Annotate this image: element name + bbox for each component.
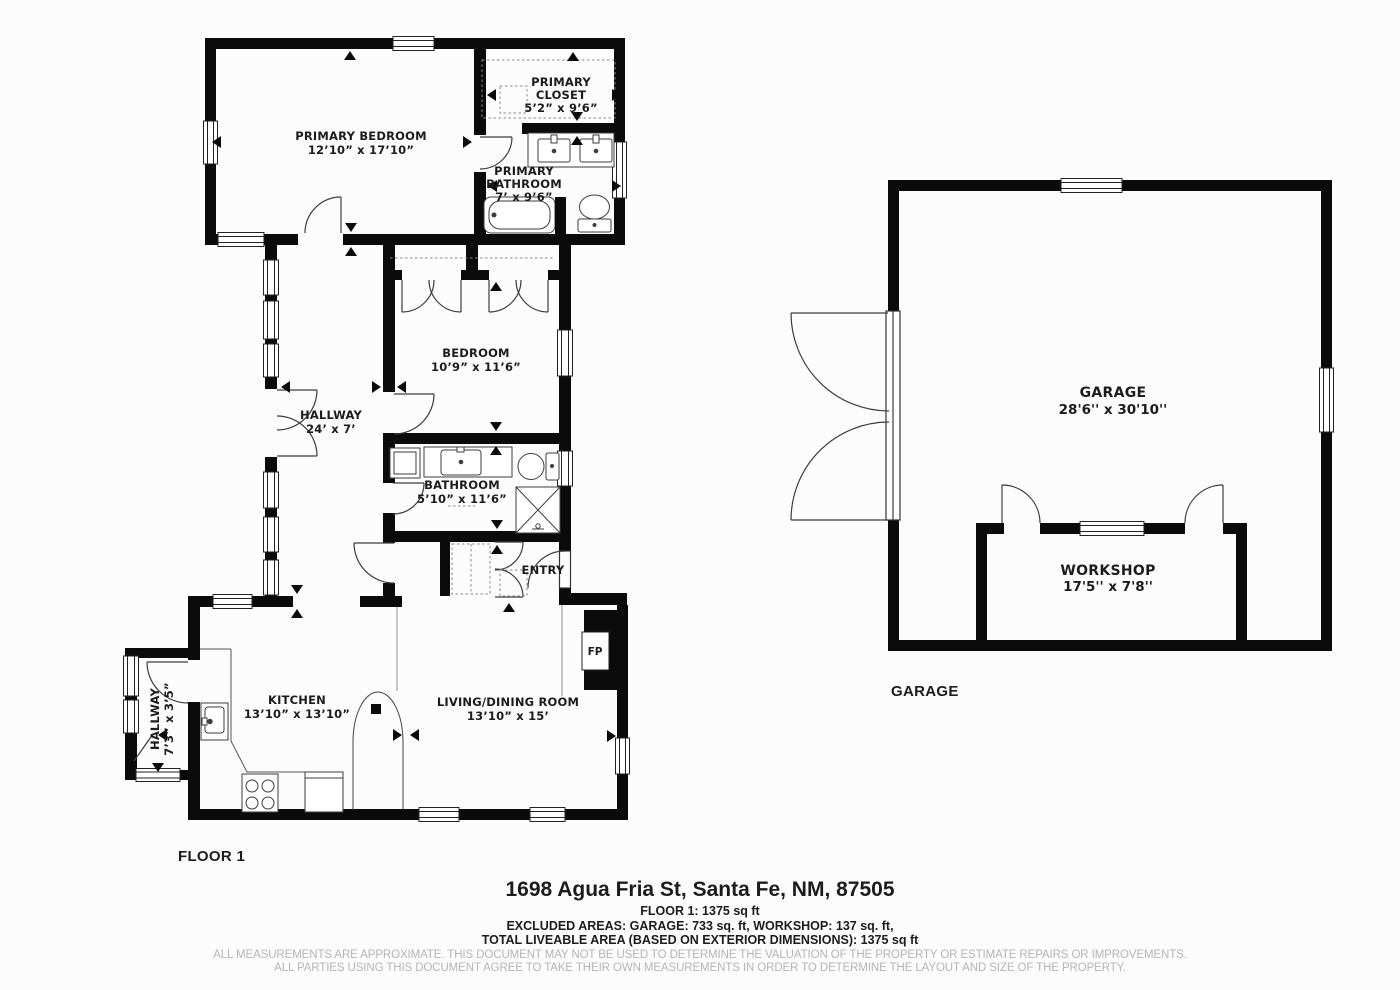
room-label-entry: ENTRY	[522, 563, 565, 577]
room-label-bedroom: BEDROOM	[442, 346, 509, 360]
room-label-living-dining: LIVING/DINING ROOM	[437, 695, 579, 709]
labels-layer: PRIMARY BEDROOM 12’10” x 17’10” PRIMARY …	[148, 75, 1167, 756]
arrow-down-icon	[490, 422, 502, 431]
arrow-left-icon	[487, 89, 496, 101]
arrow-left-icon	[281, 381, 290, 393]
kitchen-sink-icon	[201, 703, 228, 740]
arrow-up-icon	[503, 603, 515, 612]
arrow-up-icon	[291, 609, 303, 618]
arrow-up-icon	[345, 247, 357, 256]
closet-shelf-outline	[500, 86, 527, 113]
archway-icon	[353, 692, 403, 810]
doors-layer	[134, 137, 1223, 761]
titles-layer: FLOOR 1 GARAGE 1698 Agua Fria St, Santa …	[178, 683, 1187, 974]
window-icon	[1320, 368, 1334, 432]
window-icon	[1080, 522, 1144, 536]
garage-doors-icon	[791, 311, 900, 520]
floor-plan-page: PRIMARY BEDROOM 12’10” x 17’10” PRIMARY …	[0, 0, 1400, 990]
arrow-up-icon	[567, 52, 579, 61]
arrow-up-icon	[344, 51, 356, 60]
arrow-right-icon	[393, 729, 402, 741]
window-icon	[530, 808, 565, 822]
disclaimer-line-1: ALL MEASUREMENTS ARE APPROXIMATE. THIS D…	[213, 949, 1187, 961]
arrow-left-icon	[397, 381, 406, 393]
closet-doors-icon	[402, 280, 548, 312]
area-summary-line-1: FLOOR 1: 1375 sq ft	[640, 904, 760, 918]
room-label-primary-closet: PRIMARY	[531, 75, 591, 89]
room-dims-primary-bathroom: 7’ x 9’6”	[495, 190, 553, 204]
area-summary-line-3: TOTAL LIVEABLE AREA (BASED ON EXTERIOR D…	[482, 933, 919, 947]
room-label-primary-bedroom: PRIMARY BEDROOM	[295, 129, 426, 143]
room-label-garage: GARAGE	[1080, 385, 1147, 401]
window-icon	[393, 37, 434, 51]
window-icon	[558, 451, 573, 486]
arrow-down-icon	[345, 223, 357, 232]
door-swing-icon	[1002, 485, 1040, 523]
fireplace-label: FP	[588, 646, 603, 658]
arrow-up-icon	[490, 282, 502, 291]
room-label-kitchen: KITCHEN	[268, 693, 326, 707]
room-label-small-hallway: HALLWAY	[148, 688, 162, 750]
room-dims-primary-bedroom: 12’10” x 17’10”	[308, 143, 414, 157]
window-icon	[264, 301, 279, 339]
window-icon	[1061, 179, 1122, 193]
floor-plan-canvas: PRIMARY BEDROOM 12’10” x 17’10” PRIMARY …	[0, 0, 1400, 990]
area-summary-line-2: EXCLUDED AREAS: GARAGE: 733 sq. ft, WORK…	[506, 919, 893, 933]
window-icon	[264, 260, 279, 295]
room-dims-bathroom: 5’10” x 11’6”	[417, 492, 507, 506]
arrow-right-icon	[463, 136, 472, 148]
window-icon	[616, 738, 630, 774]
door-swing-icon	[1185, 485, 1223, 523]
window-icon	[124, 700, 139, 733]
arrow-up-icon	[491, 545, 503, 554]
arrow-right-icon	[372, 381, 381, 393]
window-icon	[264, 517, 279, 552]
address-line: 1698 Agua Fria St, Santa Fe, NM, 87505	[505, 878, 894, 901]
room-label-bathroom: BATHROOM	[424, 478, 500, 492]
room-dims-workshop: 17'5'' x 7'8''	[1063, 579, 1153, 595]
window-icon	[264, 344, 279, 377]
window-icon	[419, 808, 459, 822]
room-dims-primary-closet: 5’2” x 9’6”	[524, 101, 598, 115]
room-label-primary-closet: CLOSET	[536, 88, 586, 102]
room-dims-small-hallway: 7’3” x 3’5”	[162, 682, 176, 756]
window-icon	[264, 472, 279, 508]
door-swing-icon	[305, 197, 341, 233]
room-dims-kitchen: 13’10” x 13’10”	[244, 707, 350, 721]
window-icon	[213, 595, 252, 609]
room-label-small-hallway-group: HALLWAY 7’3” x 3’5”	[148, 682, 176, 756]
dishwasher-icon	[305, 772, 343, 812]
floor-title: FLOOR 1	[178, 848, 245, 865]
arrow-down-icon	[491, 520, 503, 529]
arrow-left-icon	[410, 729, 419, 741]
door-swing-icon	[394, 394, 434, 434]
window-icon	[264, 560, 279, 595]
garage-structure-title: GARAGE	[891, 683, 959, 700]
room-dims-living-dining: 13’10” x 15’	[467, 709, 549, 723]
arrow-down-icon	[291, 585, 303, 594]
double-sink-vanity-icon	[528, 133, 614, 167]
shower-icon	[516, 487, 560, 533]
window-icon	[124, 656, 139, 696]
shower-stall-icon	[390, 448, 420, 478]
toilet-icon	[578, 195, 611, 232]
window-icon	[218, 233, 264, 247]
window-icon	[558, 330, 573, 376]
arrow-right-icon	[607, 730, 616, 742]
wall-stub	[555, 197, 566, 234]
room-dims-hallway: 24’ x 7’	[306, 422, 356, 436]
room-label-primary-bathroom: PRIMARY	[494, 164, 554, 178]
stove-icon	[242, 774, 278, 812]
room-label-hallway: HALLWAY	[300, 408, 362, 422]
room-label-workshop: WORKSHOP	[1060, 563, 1155, 579]
room-label-primary-bathroom: BATHROOM	[486, 177, 562, 191]
door-swing-icon	[354, 543, 394, 583]
room-dims-bedroom: 10’9” x 11’6”	[431, 360, 521, 374]
room-dims-garage: 28'6'' x 30'10''	[1059, 402, 1168, 418]
toilet-icon	[518, 453, 559, 480]
disclaimer-line-2: ALL PARTIES USING THIS DOCUMENT AGREE TO…	[274, 962, 1126, 974]
